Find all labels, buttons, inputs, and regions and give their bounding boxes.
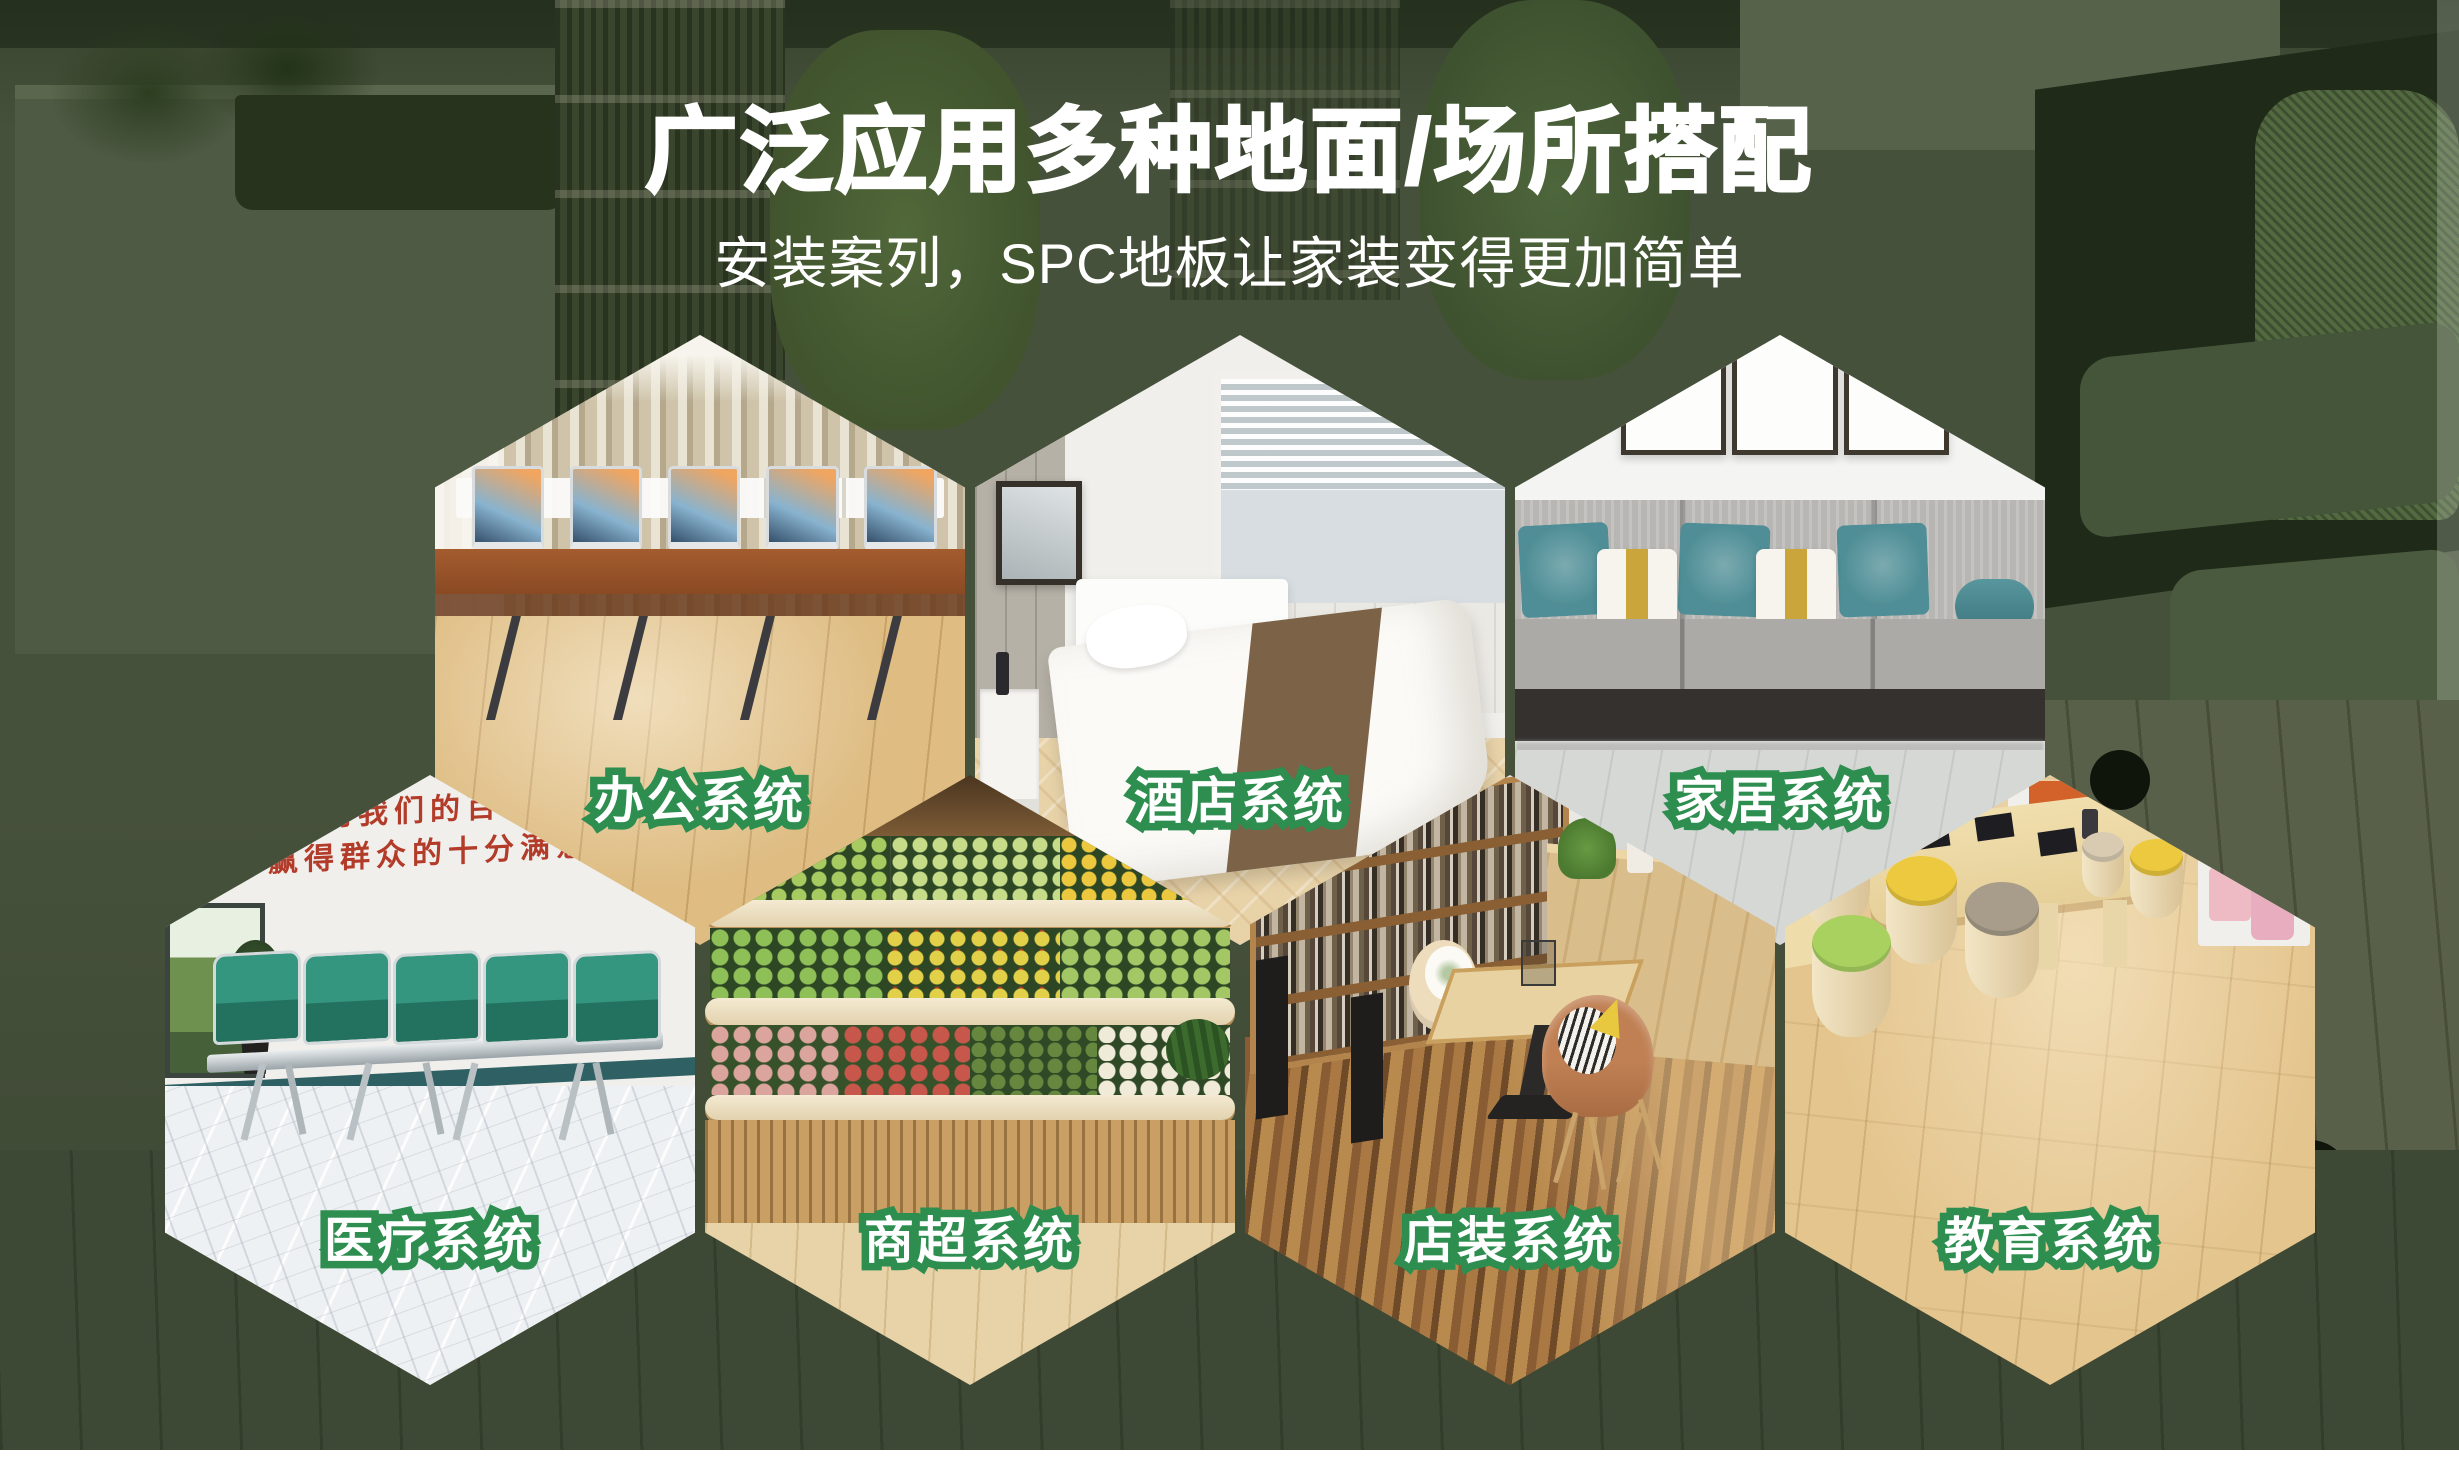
medical-bench-seat-2 [303, 950, 391, 1046]
education-tablet-2 [1974, 812, 2014, 841]
medical-bench-seat-3 [393, 950, 481, 1046]
supermarket-tier3-apples-pink [710, 1025, 843, 1095]
education-stool-green [1812, 934, 1892, 1038]
supermarket-tier2-guavas [710, 928, 885, 998]
poster-canvas: 广泛应用多种地面/场所搭配 安装案列，SPC地板让家装变得更加简单 办公系统 办… [0, 0, 2459, 1450]
education-stool-taupe [1965, 900, 2039, 998]
office-monitor-3 [668, 466, 740, 550]
medical-bench-seat-4 [483, 950, 571, 1046]
supermarket-label: 商超系统 商超系统 [705, 1211, 1235, 1281]
supermarket-tier2-pears [885, 928, 1060, 998]
poster-title: 广泛应用多种地面/场所搭配 [0, 100, 2459, 206]
home-pillow-teal-3 [1837, 523, 1930, 618]
hotel-picture-frame [996, 481, 1082, 585]
office-label-text: 办公系统 [594, 771, 806, 831]
poster-subtitle: 安装案列，SPC地板让家装变得更加简单 [0, 236, 2459, 292]
home-sofa-base [1515, 689, 2045, 741]
office-monitor-1 [472, 466, 544, 550]
hotel-bottle [996, 652, 1009, 695]
education-table-leg-2 [2103, 900, 2127, 967]
education-stool-taupe-top [1965, 882, 2039, 936]
office-monitor-4 [766, 466, 838, 550]
medical-bench-seat-1 [213, 950, 301, 1046]
hotel-label-text: 酒店系统 [1134, 771, 1346, 831]
education-stool-yellow-top [1886, 856, 1958, 906]
office-monitor-2 [570, 466, 642, 550]
office-monitor-5 [864, 466, 936, 550]
supermarket-watermelon [1166, 1019, 1230, 1080]
office-desk-front [435, 594, 965, 615]
home-art-frame-3 [1844, 335, 1949, 455]
education-tablet-3 [2038, 827, 2078, 856]
supermarket-slat-skirt [705, 1120, 1235, 1224]
supermarket-tier1-limes [891, 836, 1061, 900]
store-label: 店装系统 店装系统 [1245, 1211, 1775, 1281]
supermarket-shelf-band3 [705, 1095, 1235, 1119]
education-stool-cream-top [2082, 832, 2124, 862]
medical-label-text: 医疗系统 [324, 1211, 536, 1271]
supermarket-tier2-greens [1060, 928, 1230, 998]
home-sofa-seat [1515, 619, 2045, 692]
supermarket-shelf-band2 [705, 998, 1235, 1025]
supermarket-tier3-vegetables [970, 1025, 1097, 1095]
home-pillow-gold-1 [1597, 549, 1677, 625]
supermarket-tier3-apples-red [843, 1025, 970, 1095]
background-office-chair-center [770, 30, 1040, 430]
education-stool-yellow [1886, 873, 1958, 965]
medical-bench-seat-5 [573, 950, 661, 1046]
education-stool-cream [2082, 842, 2124, 897]
store-lantern [1521, 940, 1557, 987]
store-label-text: 店装系统 [1404, 1211, 1616, 1271]
education-stool-yellow-2 [2130, 851, 2183, 918]
home-art-frame-2 [1732, 335, 1837, 455]
home-pillow-gold-2 [1756, 549, 1836, 625]
store-shelf-leg-2 [1351, 992, 1383, 1143]
education-stool-green-top [1812, 915, 1892, 972]
home-label-text: 家居系统 [1674, 771, 1886, 831]
supermarket-label-text: 商超系统 [864, 1211, 1076, 1271]
supermarket-shelf-band1 [705, 900, 1235, 927]
office-desk-top [435, 549, 965, 595]
hotel-bed-runner [1223, 597, 1383, 891]
education-label: 教育系统 教育系统 [1785, 1211, 2315, 1281]
page-bottom-margin [0, 1450, 2459, 1478]
education-label-text: 教育系统 [1944, 1211, 2156, 1271]
medical-label: 医疗系统 医疗系统 [165, 1211, 695, 1281]
background-chair-wheel-1 [2090, 750, 2150, 810]
store-shelf-leg-1 [1256, 955, 1288, 1119]
